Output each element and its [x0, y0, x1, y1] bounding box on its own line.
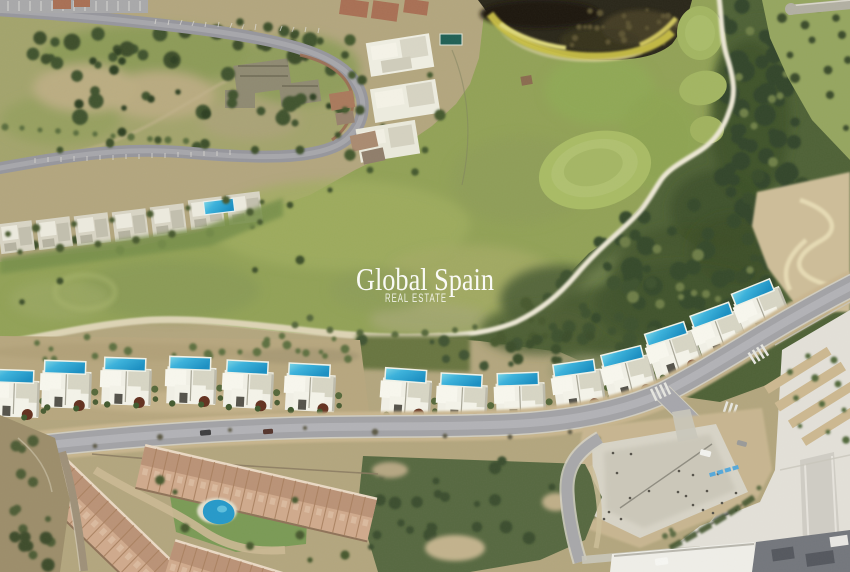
svg-text:REAL ESTATE: REAL ESTATE: [385, 291, 447, 305]
